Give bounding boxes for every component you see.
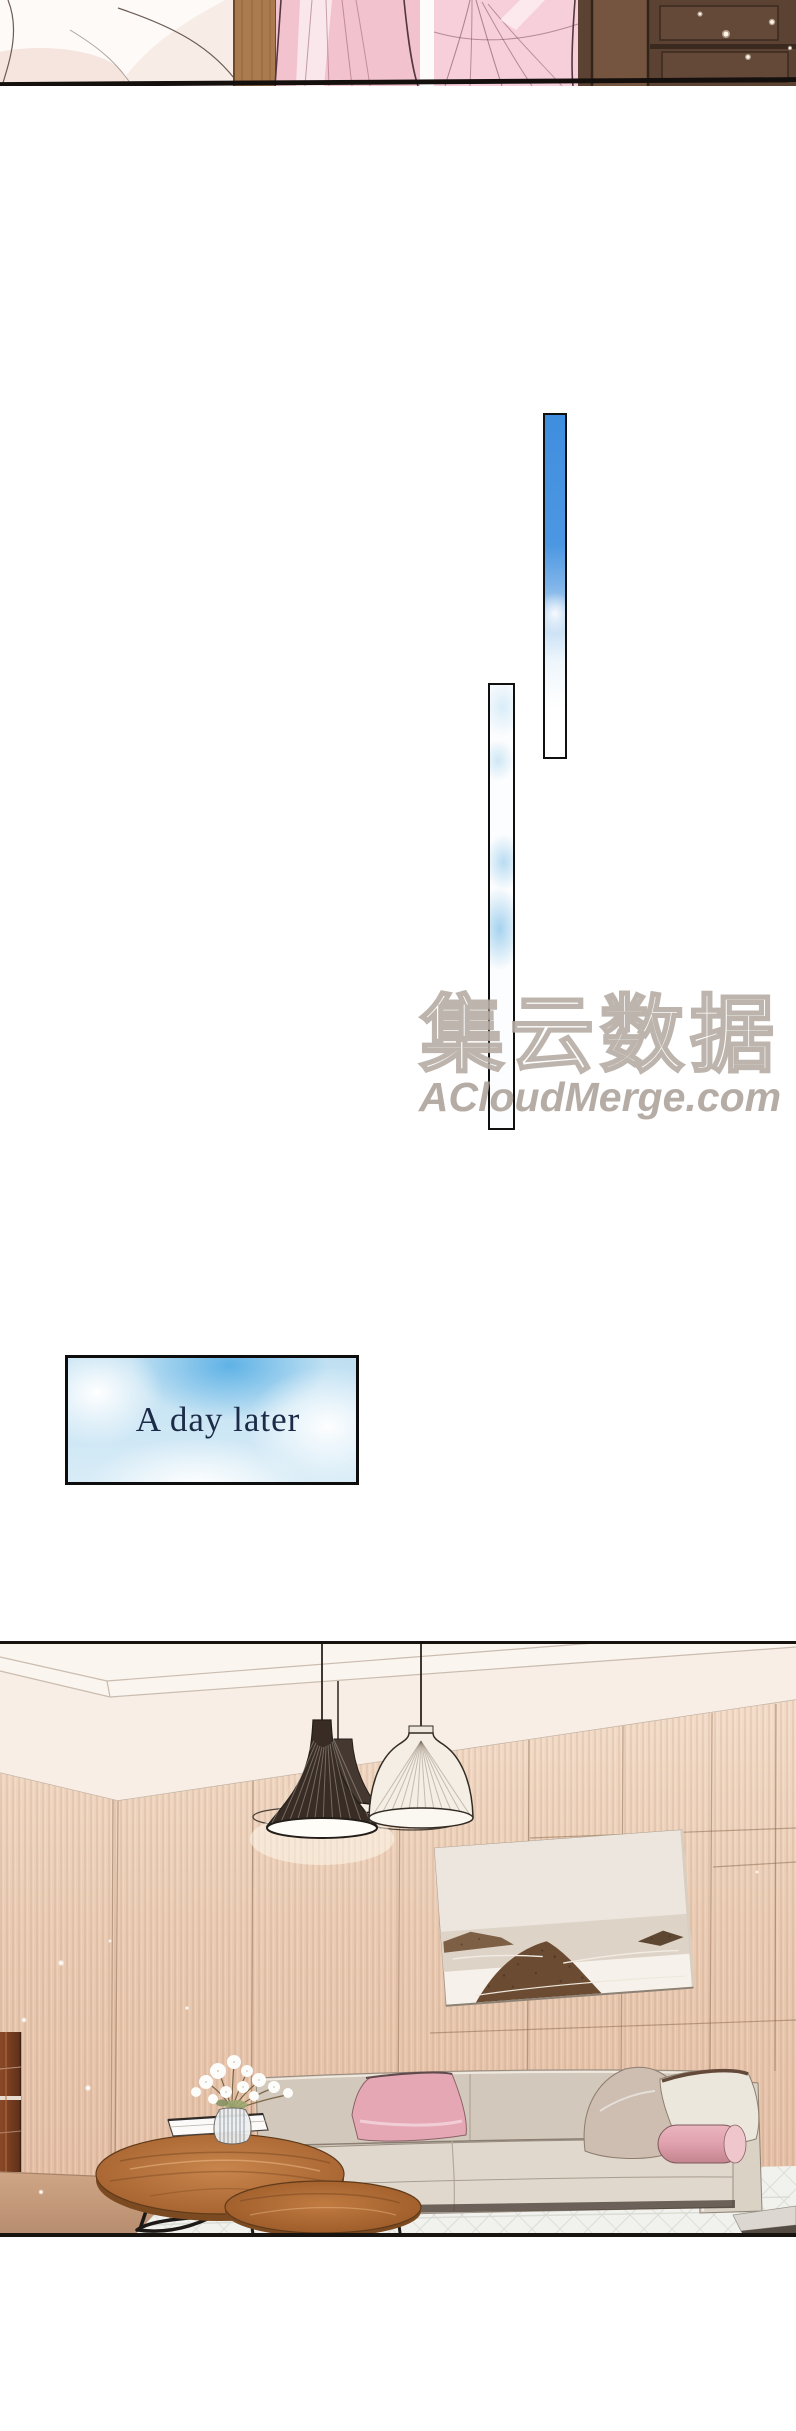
wall-painting [434, 1830, 693, 2006]
panel-border-top [0, 1641, 796, 1644]
panel-border-bottom [0, 2233, 796, 2237]
living-room-panel [0, 1641, 796, 2237]
vase [214, 2107, 251, 2145]
watermark-logo-text: 集云数据 [404, 988, 796, 1082]
caption-panel: A day later [65, 1355, 359, 1485]
pillow-pink [352, 2072, 466, 2141]
pillow-bolster [658, 2125, 746, 2163]
watermark: 集云数据 ACloudMerge.com [404, 988, 796, 1121]
caption-text: A day later [124, 1400, 301, 1440]
side-cabinet [0, 2032, 21, 2172]
sky-strip-long-panel [488, 683, 515, 1130]
sky-strip-tall-panel [543, 413, 567, 759]
top-panel-sliver [0, 0, 796, 86]
coffee-table-small [225, 2181, 421, 2237]
living-room-art [0, 1641, 796, 2237]
top-sliver-art [0, 0, 796, 86]
watermark-site-text: ACloudMerge.com [404, 1074, 796, 1121]
comic-page: 集云数据 ACloudMerge.com A day later [0, 0, 796, 2431]
